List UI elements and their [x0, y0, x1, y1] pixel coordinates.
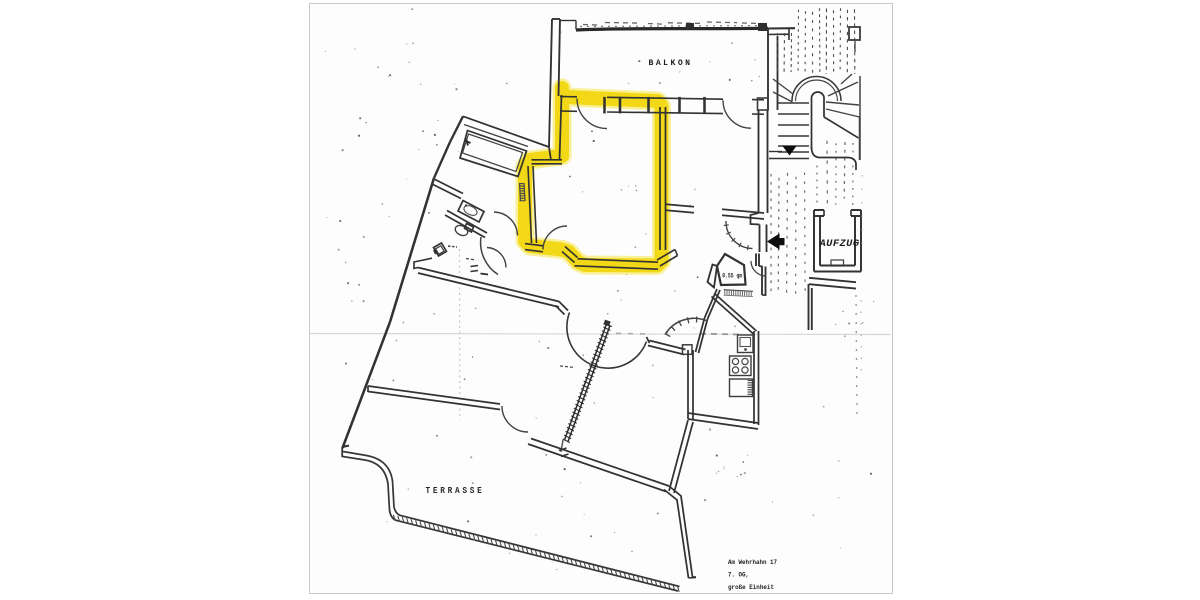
svg-text:große Einheit: große Einheit: [728, 584, 774, 591]
svg-text:AUFZUG: AUFZUG: [818, 239, 859, 250]
svg-text:0.55 qm: 0.55 qm: [722, 273, 742, 280]
svg-text:BALKON: BALKON: [649, 58, 693, 68]
svg-text:TERRASSE: TERRASSE: [426, 485, 485, 496]
svg-text:7. OG,: 7. OG,: [728, 572, 749, 579]
svg-text:Am Wehrhahn 17: Am Wehrhahn 17: [728, 559, 777, 566]
